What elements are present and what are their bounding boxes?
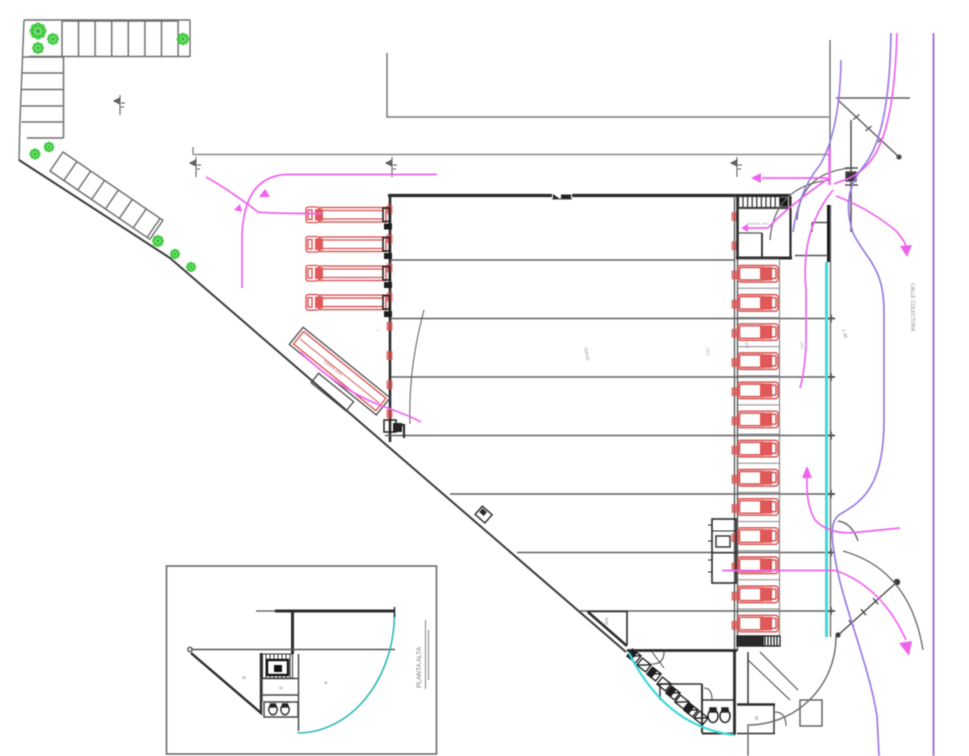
svg-text:CALLE COLECTORA: CALLE COLECTORA [909,283,915,332]
svg-text:acc: acc [604,617,610,625]
svg-text:PLANTA ALTA: PLANTA ALTA [416,646,423,688]
svg-text:RAMPA 15%: RAMPA 15% [747,222,769,226]
